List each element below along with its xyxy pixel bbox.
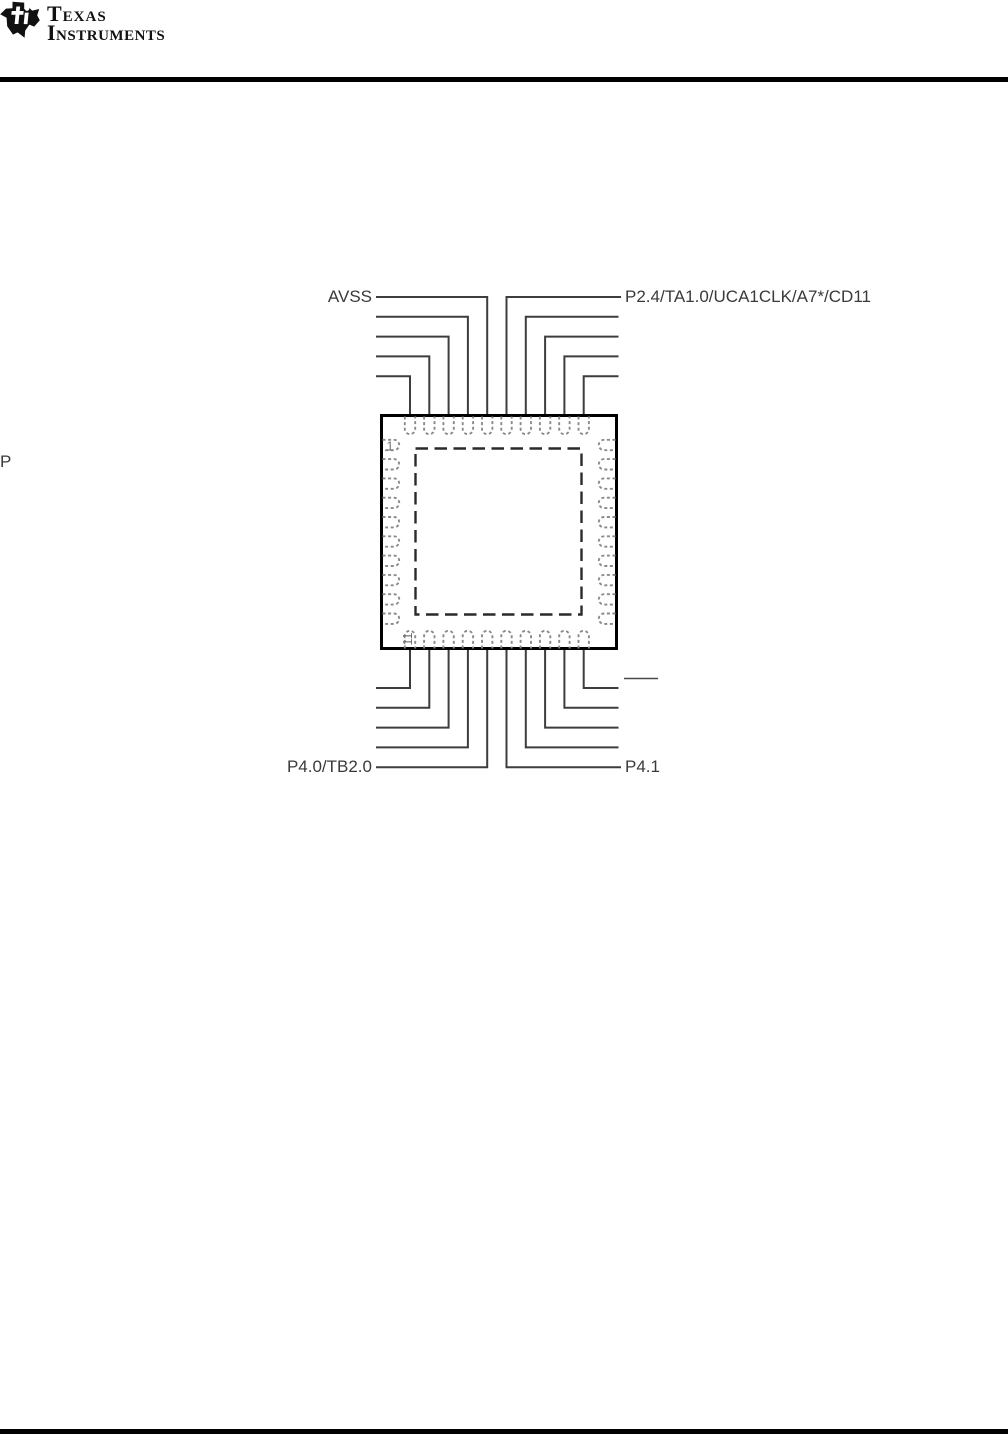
pin-label-p2-4: P2.4/TA1.0/UCA1CLK/A7*/CD11 xyxy=(625,287,871,306)
pin-label-p4-0: P4.0/TB2.0 xyxy=(222,757,372,776)
pin-label-p4-1: P4.1 xyxy=(625,757,660,776)
footer-rule xyxy=(0,1429,1008,1434)
pin1-marker: 1 xyxy=(387,440,394,454)
pin-label-avss: AVSS xyxy=(222,287,372,306)
datasheet-page: Texas Instruments 1 11 AVSS P2.4/TA1.0/U… xyxy=(0,0,1008,1440)
pin-label-left-fragment: P xyxy=(0,452,11,471)
qfn-package xyxy=(382,416,617,649)
pinout-diagram: 1 11 xyxy=(0,0,1008,1440)
pin11-marker: 11 xyxy=(401,632,415,645)
